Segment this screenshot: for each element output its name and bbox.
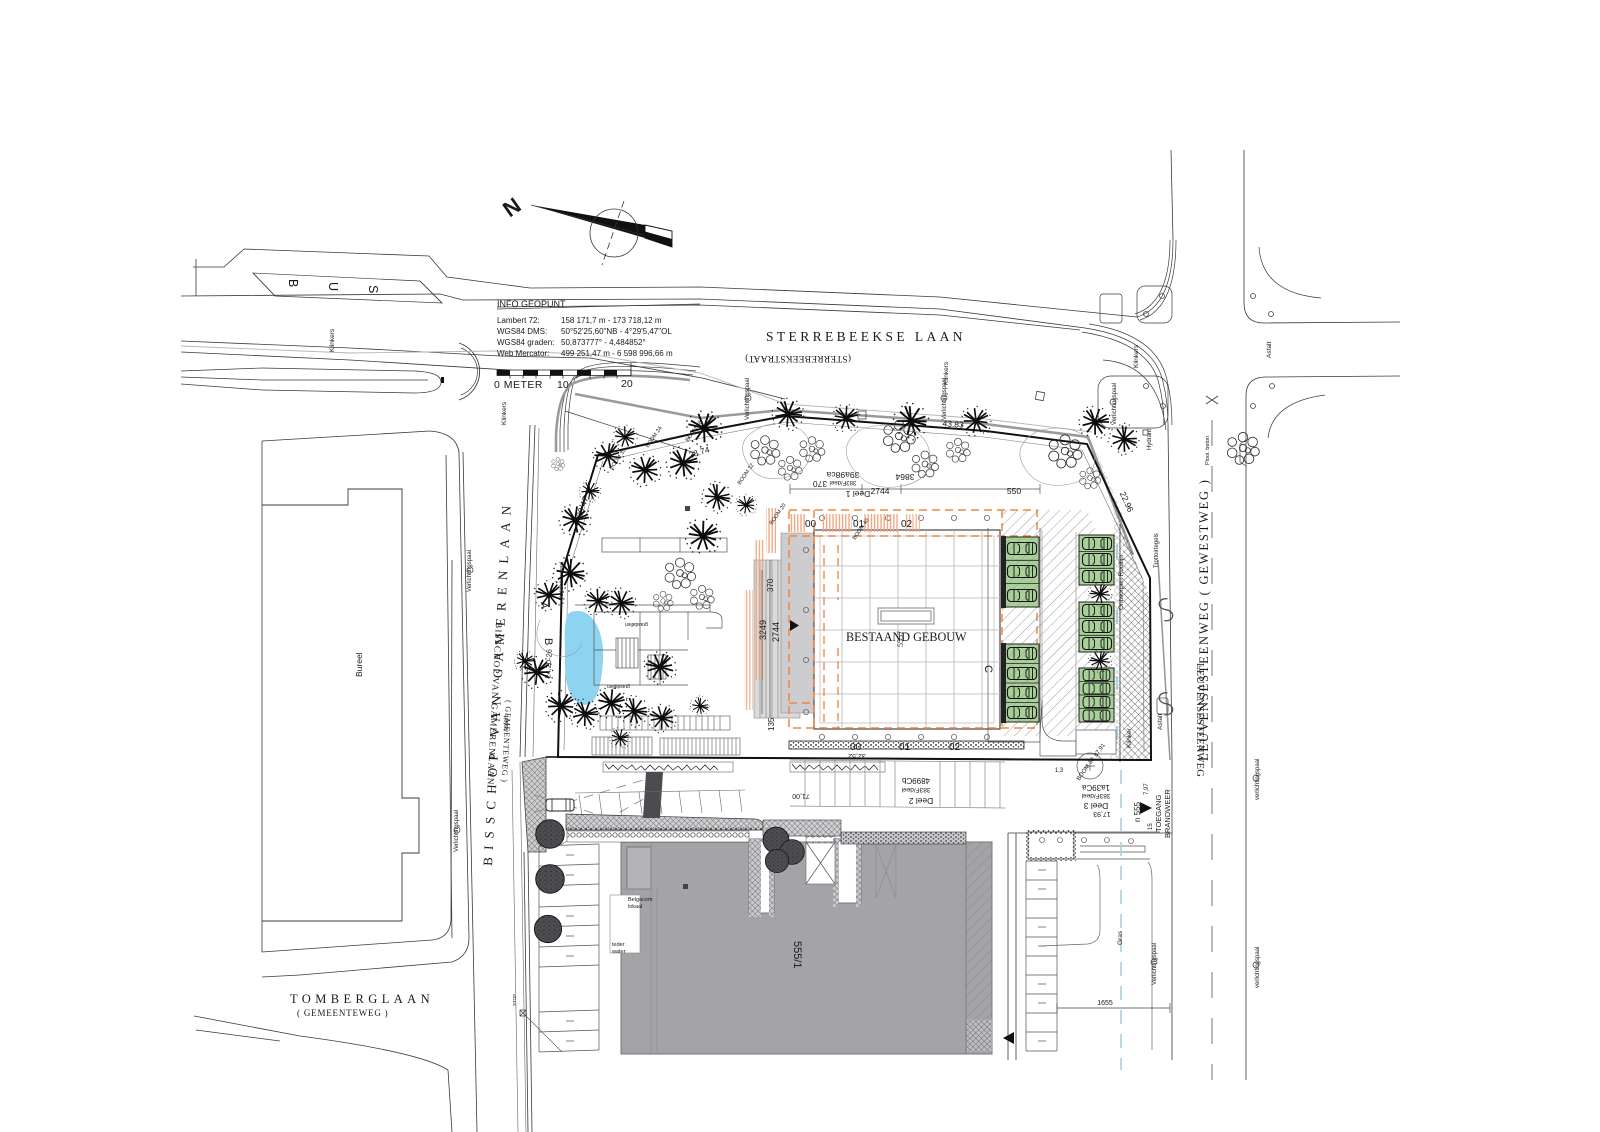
svg-text:Plooi. beton: Plooi. beton [1205,436,1211,465]
svg-text:TOEGANG: TOEGANG [1154,794,1163,832]
svg-text:teder: teder [612,942,625,948]
svg-text:Ontworpen Rooilijn: Ontworpen Rooilijn [1118,555,1125,610]
svg-text:00: 00 [850,742,862,753]
svg-text:158 171,7 m - 173 718,12 m: 158 171,7 m - 173 718,12 m [561,316,662,325]
svg-text:Verlichtingspaal: Verlichtingspaal [559,561,565,600]
svg-text:Gras: Gras [1117,930,1124,945]
svg-text:50,873777° - 4,484852°: 50,873777° - 4,484852° [561,338,646,347]
svg-text:grasdallen: grasdallen [607,683,630,689]
svg-text:Asfalt: Asfalt [1157,714,1164,730]
svg-text:7,97: 7,97 [1144,783,1150,795]
svg-text:Web Mercator:: Web Mercator: [497,349,549,358]
svg-text:39a98ca: 39a98ca [826,470,859,480]
svg-text:17,93: 17,93 [1093,810,1111,817]
svg-text:Verlichtingspaal: Verlichtingspaal [745,378,751,420]
svg-text:383F/deel: 383F/deel [830,479,857,485]
svg-text:43.83: 43.83 [942,418,964,429]
svg-text:02: 02 [901,519,913,530]
svg-text:A: A [538,602,549,609]
svg-text:lokaal: lokaal [628,904,642,910]
svg-text:00: 00 [805,519,817,530]
svg-text:U: U [326,282,340,291]
svg-text:Deel 1: Deel 1 [845,489,870,499]
svg-text:water: water [611,949,626,955]
svg-text:B: B [542,638,554,645]
svg-text:Deel 2: Deel 2 [908,796,933,806]
svg-text:24,20-26: 24,20-26 [543,649,554,679]
svg-text:Trottoirtegels: Trottoirtegels [1154,533,1160,568]
svg-text:550: 550 [1007,486,1021,496]
svg-text:383F/deel: 383F/deel [1081,792,1110,799]
svg-text:( GEMEENTEWEG ): ( GEMEENTEWEG ) [297,1008,388,1018]
svg-text:Verlichtingspaal: Verlichtingspaal [454,810,460,852]
svg-text:3249: 3249 [758,620,768,640]
svg-text:71,00: 71,00 [792,792,810,799]
svg-text:499 251,47 m - 6 598 996,66 m: 499 251,47 m - 6 598 996,66 m [561,349,673,358]
svg-text:WGS84 graden:: WGS84 graden: [497,338,554,347]
svg-text:Klinker: Klinker [1126,727,1133,748]
svg-text:3864: 3864 [895,472,914,482]
svg-text:370: 370 [766,578,775,592]
svg-text:(STERREBEEKSTRAAT): (STERREBEEKSTRAAT) [745,353,851,364]
svg-text:LEUVENSESTEENWEG: LEUVENSESTEENWEG [1194,663,1205,777]
svg-text:370: 370 [813,479,827,489]
svg-text:BRANDWEER: BRANDWEER [1163,789,1172,838]
svg-text:20: 20 [621,378,633,390]
svg-text:1,3: 1,3 [1055,768,1064,774]
svg-text:verlichtingspaal: verlichtingspaal [1255,759,1261,800]
svg-text:0 METER: 0 METER [494,379,543,391]
svg-text:Klinkers: Klinkers [1133,344,1140,368]
svg-text:10: 10 [557,379,569,391]
svg-text:Bureel: Bureel [354,652,364,677]
svg-text:BESTAAND GEBOUW: BESTAAND GEBOUW [846,630,967,644]
svg-text:32,52: 32,52 [848,752,866,759]
svg-text:383F/deel: 383F/deel [901,786,930,793]
svg-text:n 555: n 555 [1133,801,1142,822]
svg-text:B: B [286,279,300,287]
svg-text:4899Cb: 4899Cb [901,776,930,785]
svg-text:1655: 1655 [1097,1000,1113,1007]
svg-text:5557: 5557 [896,631,905,647]
svg-text:TOMBERGLAAN: TOMBERGLAAN [290,992,434,1006]
svg-text:Asfalt: Asfalt [503,716,510,732]
svg-text:grasdallen: grasdallen [625,621,648,627]
svg-text:Asfalt: Asfalt [1266,342,1273,358]
svg-text:02: 02 [949,742,961,753]
svg-text:Deel 3: Deel 3 [1083,801,1108,811]
svg-text:15: 15 [1148,823,1154,830]
svg-text:C: C [982,665,994,673]
svg-text:Lambert 72:: Lambert 72: [497,316,540,325]
svg-text:Verlichtingspaal: Verlichtingspaal [467,550,473,592]
svg-text:Klinkers: Klinkers [501,401,508,425]
svg-text:Belgacom: Belgacom [628,897,653,903]
svg-text:1a39Ca: 1a39Ca [1081,783,1110,792]
svg-text:2744: 2744 [771,622,781,642]
svg-text:50°52'25,60"NB - 4°29'5,47"OL: 50°52'25,60"NB - 4°29'5,47"OL [561,327,672,336]
svg-text:Klinkers: Klinkers [329,328,336,352]
svg-text:555/1: 555/1 [791,941,803,969]
svg-text:WGS84 DMS:: WGS84 DMS: [497,327,547,336]
svg-text:01: 01 [899,742,911,753]
svg-text:S: S [366,285,380,293]
svg-text:STERREBEEKSE LAAN: STERREBEEKSE LAAN [766,329,966,344]
svg-text:STOP: STOP [512,994,517,1006]
svg-text:135: 135 [767,717,776,731]
svg-text:Verlichtingspaal: Verlichtingspaal [1152,943,1158,985]
